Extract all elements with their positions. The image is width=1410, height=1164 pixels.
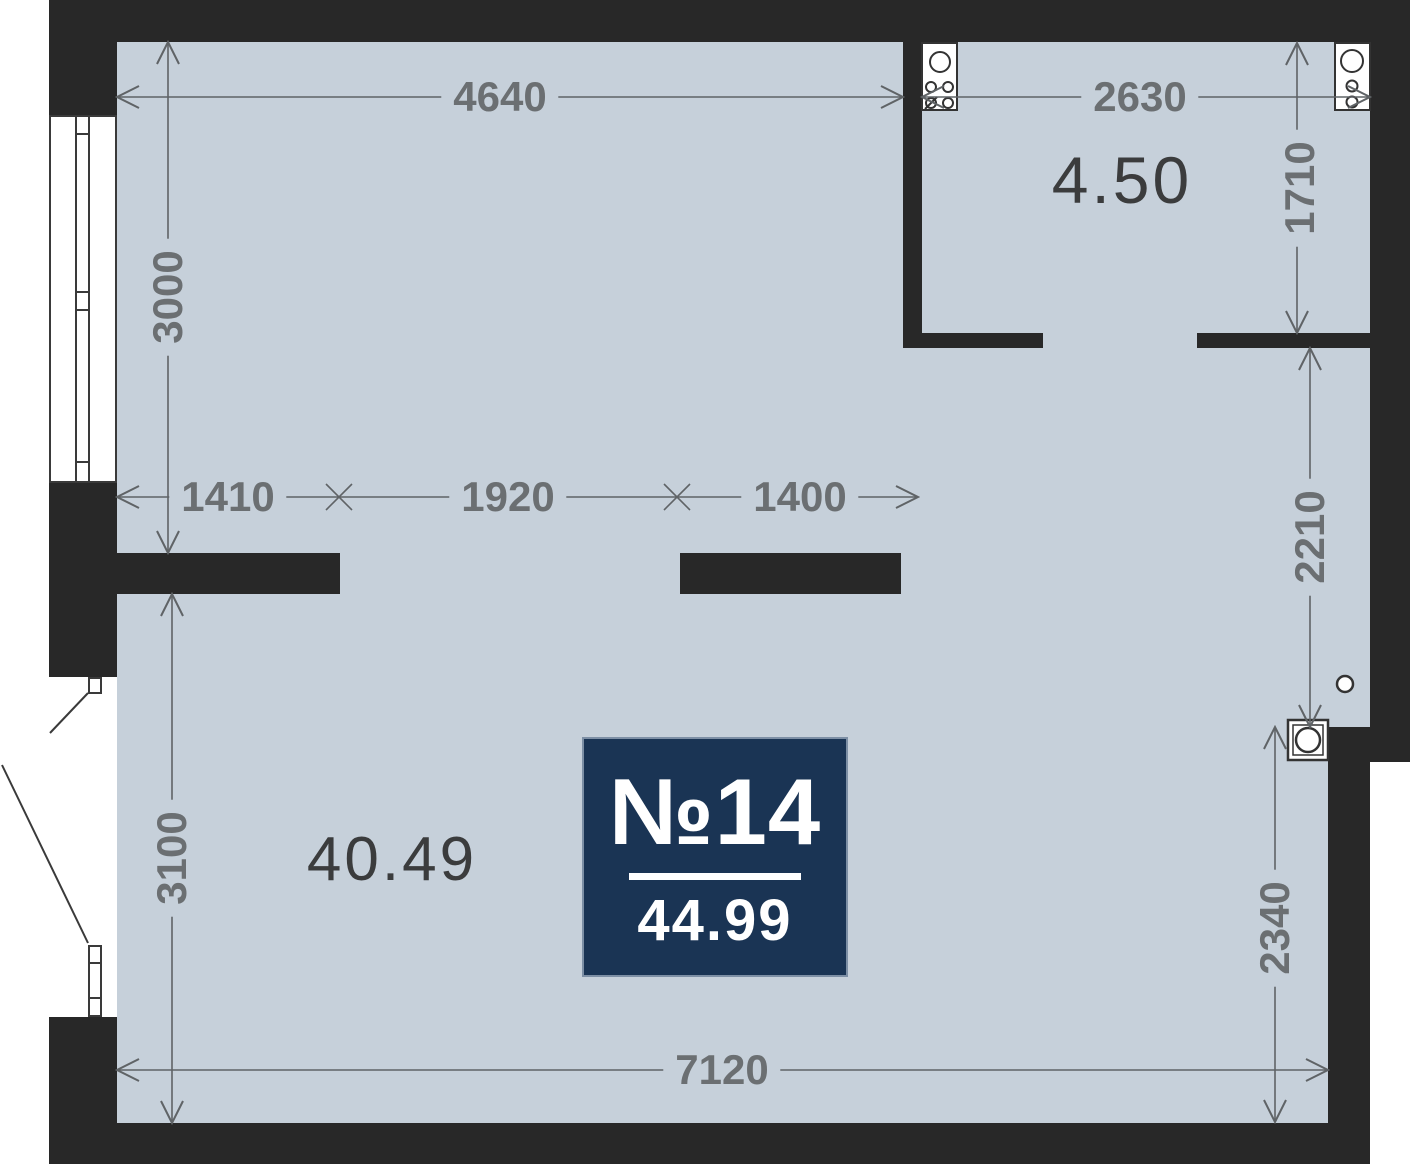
badge-divider — [629, 873, 801, 880]
plan-graphics — [0, 0, 1410, 1164]
unit-number: №14 — [609, 765, 821, 859]
sink-icon — [1335, 43, 1370, 110]
dimension-label-2340: 2340 — [1252, 869, 1298, 986]
dimension-label-1410: 1410 — [169, 474, 286, 520]
dimension-label-1920: 1920 — [449, 474, 566, 520]
dimension-label-1400: 1400 — [741, 474, 858, 520]
kitchen-area-label: 4.50 — [1052, 147, 1192, 213]
floor-drain-icon — [1337, 676, 1353, 692]
dimension-label-2630: 2630 — [1081, 74, 1198, 120]
washer-icon — [1288, 720, 1328, 760]
door-swing-icon — [2, 693, 88, 943]
floor-plan: 4640 2630 1410 1920 1400 7120 3000 3100 … — [0, 0, 1410, 1164]
dimension-label-2210: 2210 — [1287, 478, 1333, 595]
unit-total-area: 44.99 — [637, 892, 792, 950]
dimension-label-4640: 4640 — [441, 74, 558, 120]
dimension-label-3100: 3100 — [149, 799, 195, 916]
dimension-label-7120: 7120 — [663, 1047, 780, 1093]
unit-badge: №14 44.99 — [582, 737, 848, 977]
main-room-area-label: 40.49 — [307, 829, 477, 891]
stove-icon — [922, 43, 957, 110]
dimension-label-3000: 3000 — [145, 238, 191, 355]
dimension-label-1710: 1710 — [1277, 129, 1323, 246]
